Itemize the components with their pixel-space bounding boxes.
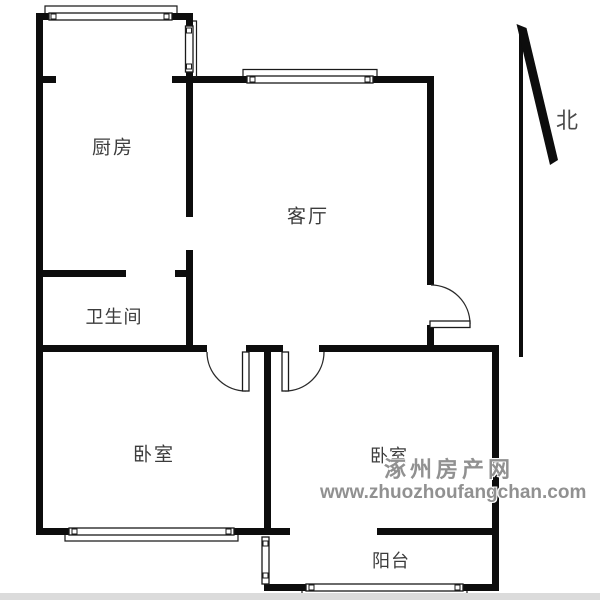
window-balcony-west	[262, 537, 269, 584]
wall-bathroom-north-stub	[175, 270, 187, 277]
room-label-living-room: 客厅	[287, 208, 329, 227]
wall-bedroom-right-north	[319, 345, 499, 352]
wall-bathroom-south	[36, 345, 207, 352]
room-label-bathroom: 卫生间	[86, 308, 143, 326]
walls	[36, 13, 499, 591]
window-bedroom-left-south	[65, 528, 238, 541]
window-living-north	[243, 70, 377, 84]
floorplan-drawing	[0, 0, 600, 600]
door-bedroom-right	[282, 352, 324, 391]
wall-kitchen-east-lower	[186, 250, 193, 352]
window-kitchen-north	[45, 6, 177, 20]
wall-bathroom-north	[36, 270, 126, 277]
footer-bar	[0, 593, 600, 600]
room-label-kitchen: 厨房	[92, 139, 134, 158]
north-arrow-icon	[517, 24, 559, 357]
window-kitchen-east	[186, 21, 197, 77]
wall-living-east-upper	[427, 76, 434, 285]
door-entry	[430, 285, 470, 328]
room-label-balcony: 阳台	[372, 552, 410, 570]
wall-stub-west	[43, 76, 56, 83]
wall-east	[492, 345, 499, 591]
floorplan-canvas: 厨房 客厅 卫生间 卧室 卧室 阳台 北 涿州房产网 www.zhuozhouf…	[0, 0, 600, 600]
room-label-bedroom-left: 卧室	[133, 446, 175, 465]
room-label-bedroom-right: 卧室	[370, 447, 408, 465]
north-label: 北	[556, 110, 578, 132]
wall-bedroom-divider	[264, 345, 271, 535]
wall-balcony-north	[377, 528, 499, 535]
door-bedroom-left	[207, 352, 249, 391]
wall-kitchen-east-mid	[186, 70, 193, 217]
